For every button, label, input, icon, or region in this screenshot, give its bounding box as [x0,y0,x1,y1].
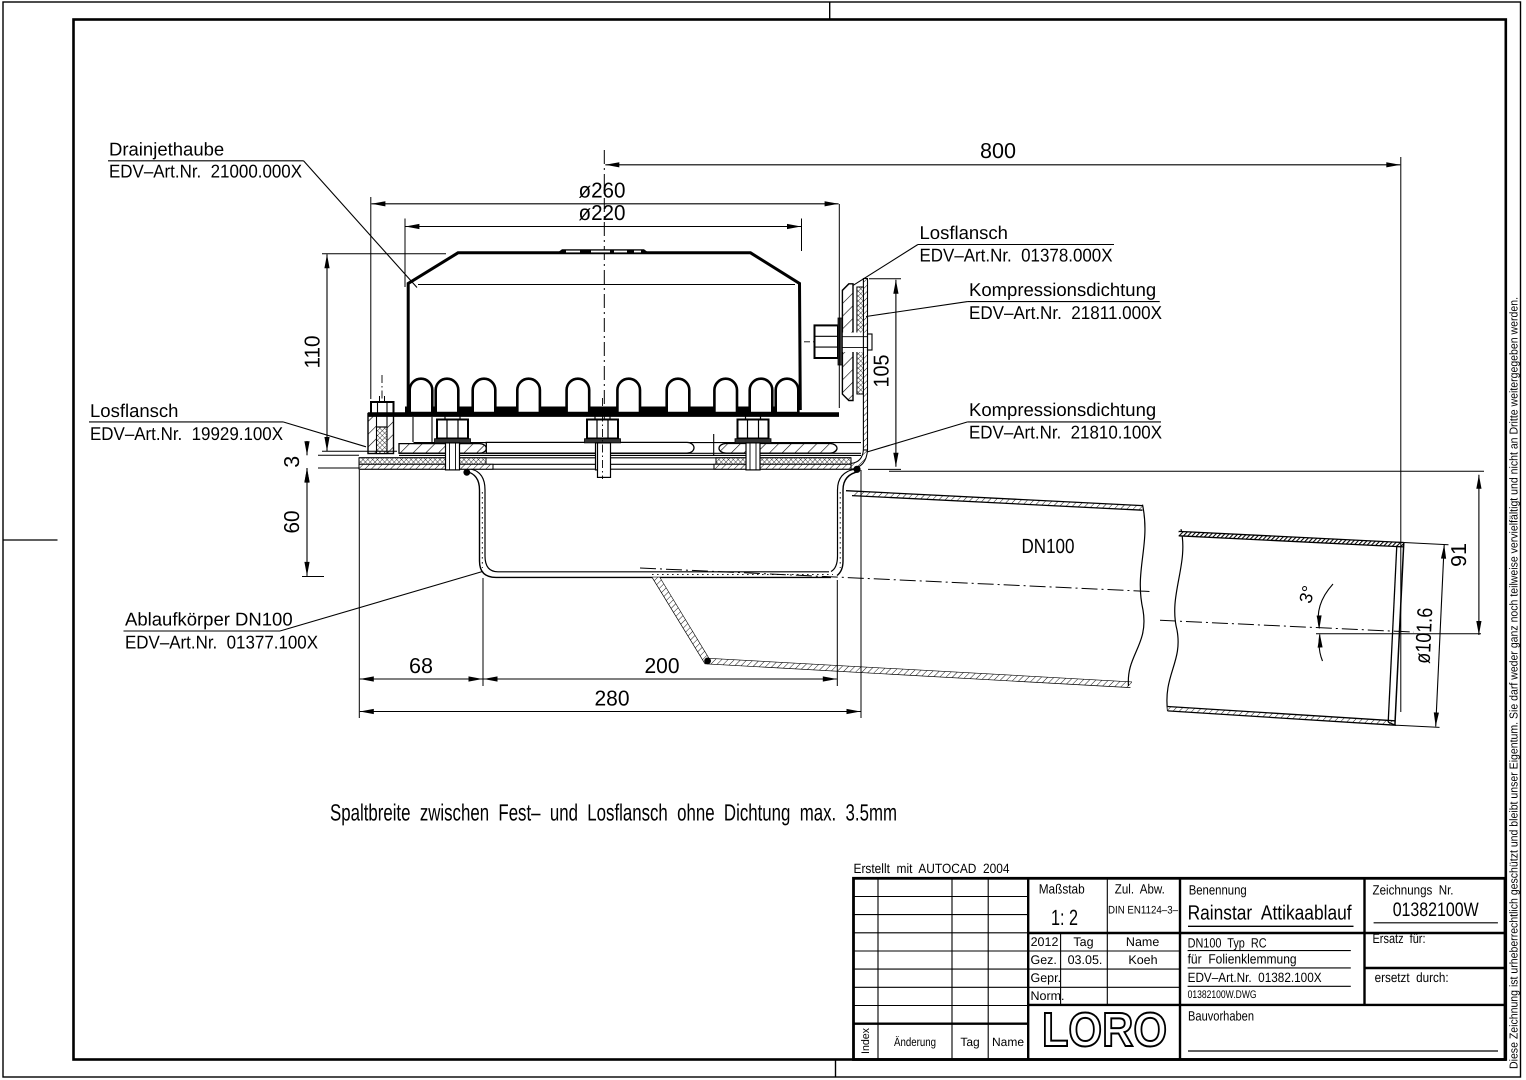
svg-text:Maßstab: Maßstab [1039,881,1085,896]
svg-text:Ablaufkörper DN100: Ablaufkörper DN100 [125,608,293,629]
svg-text:ø220: ø220 [579,201,626,225]
svg-text:für Folienklemmung: für Folienklemmung [1188,952,1297,967]
svg-text:Index: Index [860,1028,872,1054]
svg-text:Tag: Tag [960,1035,979,1049]
svg-text:Gez.: Gez. [1031,953,1057,967]
svg-text:EDV–Art.Nr. 21000.000X: EDV–Art.Nr. 21000.000X [109,161,302,182]
svg-text:Benennung: Benennung [1189,882,1247,897]
svg-text:DN100 Typ RC: DN100 Typ RC [1188,935,1267,950]
svg-text:EDV–Art.Nr. 01378.000X: EDV–Art.Nr. 01378.000X [920,245,1113,266]
svg-text:Kompressionsdichtung: Kompressionsdichtung [969,279,1156,300]
svg-text:EDV–Art.Nr. 21810.100X: EDV–Art.Nr. 21810.100X [969,422,1162,443]
svg-text:Diese Zeichnung ist urheberrec: Diese Zeichnung ist urheberrechtlich ges… [1509,297,1521,1069]
svg-text:03.05.: 03.05. [1068,953,1103,967]
svg-text:EDV–Art.Nr. 01377.100X: EDV–Art.Nr. 01377.100X [125,631,318,652]
svg-text:105: 105 [870,354,894,387]
svg-text:LORO: LORO [1042,1004,1167,1057]
svg-text:Tag: Tag [1073,935,1093,949]
svg-text:91: 91 [1447,543,1471,567]
svg-text:Name: Name [1126,935,1159,949]
svg-text:Kompressionsdichtung: Kompressionsdichtung [969,399,1156,420]
svg-text:68: 68 [409,654,433,678]
svg-text:800: 800 [980,139,1016,163]
svg-text:Zeichnungs Nr.: Zeichnungs Nr. [1373,882,1454,897]
svg-text:Losflansch: Losflansch [920,222,1008,243]
svg-text:ø260: ø260 [579,179,626,203]
svg-text:Spaltbreite zwischen Fest–: Spaltbreite zwischen Fest– und Losflansc… [330,800,897,826]
svg-text:Losflansch: Losflansch [90,400,178,421]
svg-text:110: 110 [301,335,325,368]
svg-text:01382100W.DWG: 01382100W.DWG [1188,989,1257,1001]
svg-text:EDV–Art.Nr. 21811.000X: EDV–Art.Nr. 21811.000X [969,302,1162,323]
svg-text:EDV–Art.Nr. 19929.100X: EDV–Art.Nr. 19929.100X [90,423,283,444]
svg-text:1: 2: 1: 2 [1051,905,1078,930]
svg-text:2012: 2012 [1031,935,1059,949]
svg-text:Erstellt mit AUTOCAD 2004: Erstellt mit AUTOCAD 2004 [854,861,1010,876]
svg-text:DN100: DN100 [1022,535,1075,558]
svg-text:Änderung: Änderung [894,1035,936,1049]
svg-text:280: 280 [595,687,630,711]
svg-text:3: 3 [280,456,304,468]
svg-text:Gepr.: Gepr. [1031,971,1062,985]
svg-text:ersetzt durch:: ersetzt durch: [1375,970,1449,985]
svg-text:Ersatz für:: Ersatz für: [1373,931,1426,946]
svg-text:EDV–Art.Nr. 01382.100X: EDV–Art.Nr. 01382.100X [1188,970,1322,985]
svg-text:Name: Name [992,1035,1024,1049]
svg-text:DIN EN1124–3–: DIN EN1124–3– [1108,905,1179,917]
svg-text:200: 200 [645,654,680,678]
svg-text:Koeh: Koeh [1128,953,1157,967]
svg-text:60: 60 [280,510,304,533]
svg-text:ø101.6: ø101.6 [1411,607,1438,664]
svg-text:Bauvorhaben: Bauvorhaben [1188,1009,1254,1024]
svg-text:Norm.: Norm. [1031,989,1065,1003]
svg-text:Zul. Abw.: Zul. Abw. [1115,881,1165,896]
svg-text:01382100W: 01382100W [1393,899,1479,921]
svg-text:Rainstar Attikaablauf: Rainstar Attikaablauf [1188,902,1352,925]
svg-text:Drainjethaube: Drainjethaube [109,138,224,159]
